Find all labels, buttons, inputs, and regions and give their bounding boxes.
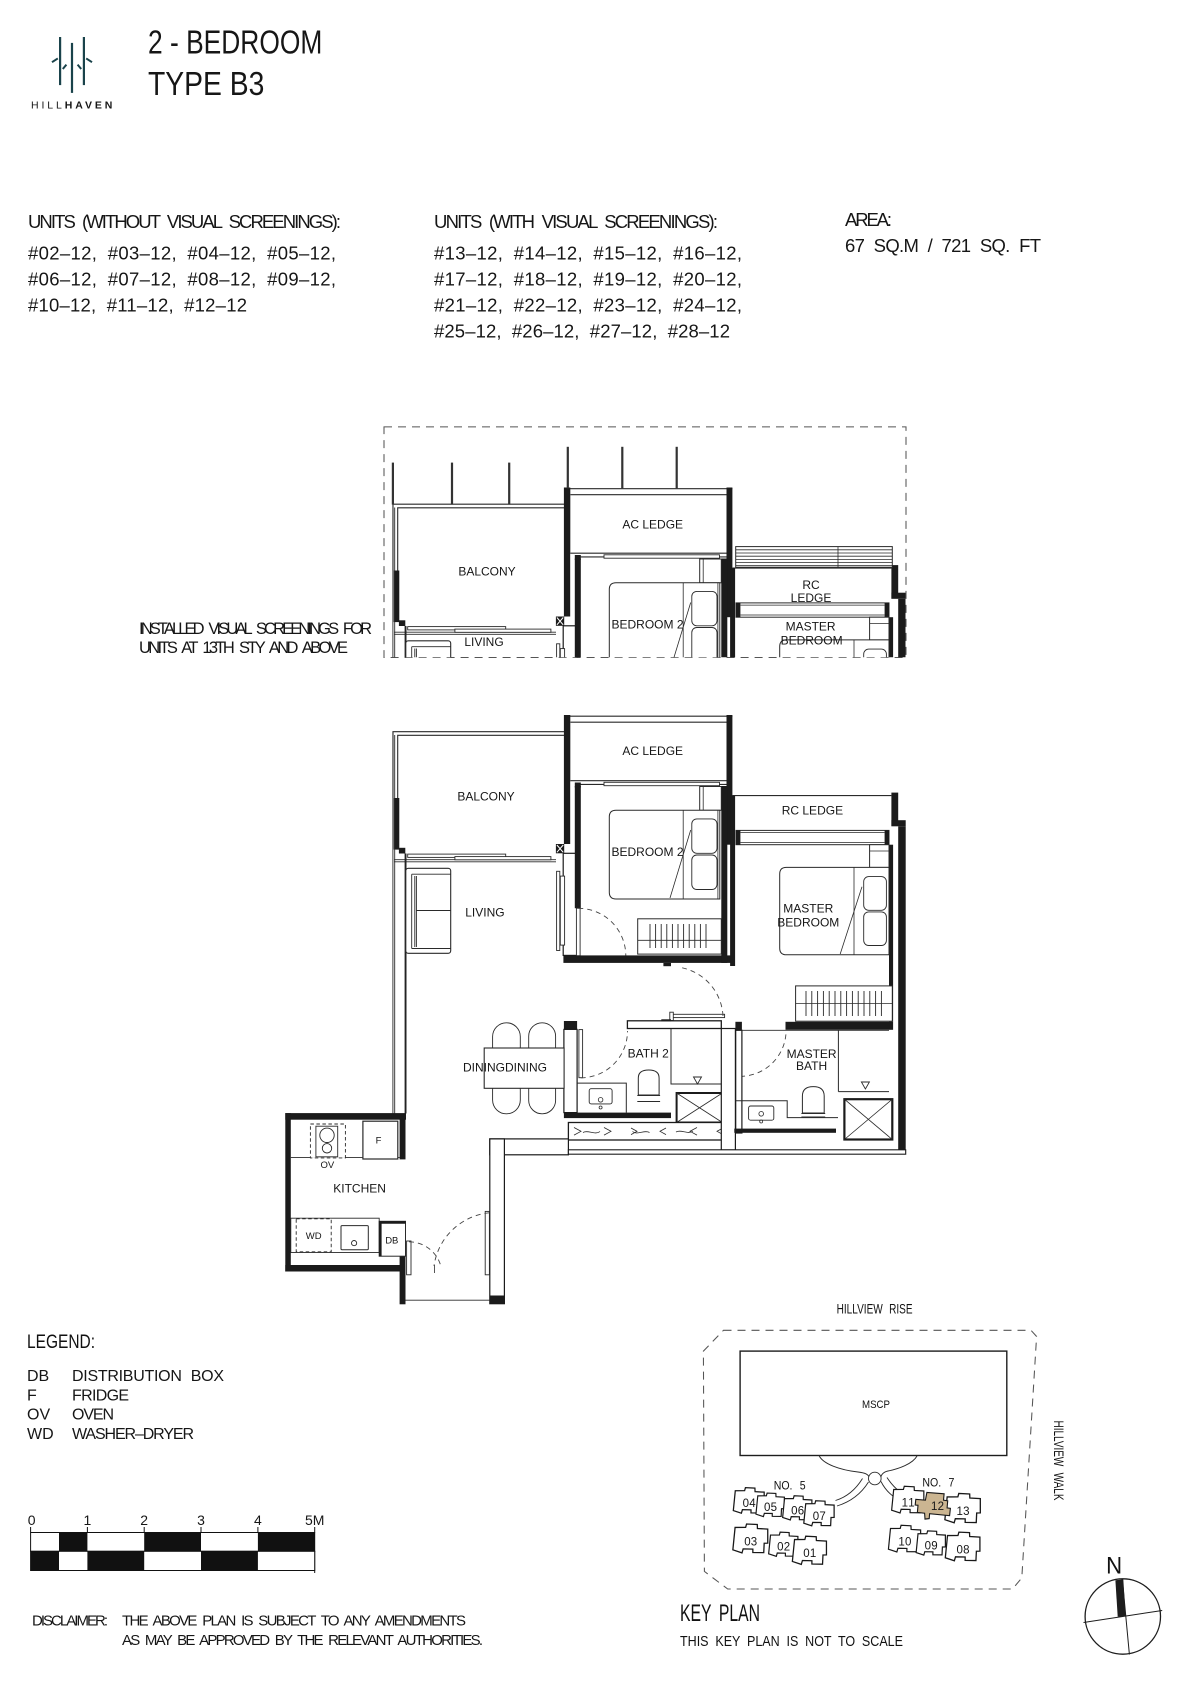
svg-text:RC LEDGE: RC LEDGE — [782, 803, 843, 817]
svg-text:LIVING: LIVING — [464, 635, 503, 649]
svg-text:OVEN: OVEN — [72, 1407, 114, 1424]
svg-text:06: 06 — [791, 1505, 804, 1517]
svg-text:THIS KEY PLAN IS NOT TO SCALE: THIS KEY PLAN IS NOT TO SCALE — [680, 1633, 903, 1650]
svg-text:07: 07 — [813, 1511, 826, 1523]
svg-text:3: 3 — [197, 1512, 205, 1528]
svg-text:UNITS AT 13TH STY AND ABOVE: UNITS AT 13TH STY AND ABOVE — [139, 639, 348, 657]
svg-text:01: 01 — [803, 1548, 816, 1560]
svg-text:OV: OV — [27, 1407, 50, 1424]
svg-text:DB: DB — [27, 1368, 49, 1385]
svg-text:BATH 2: BATH 2 — [628, 1047, 669, 1061]
svg-text:#13–12, #14–12, #15–12, #16–12: #13–12, #14–12, #15–12, #16–12, — [434, 243, 742, 264]
svg-text:NO. 7: NO. 7 — [922, 1476, 954, 1490]
svg-text:MASTER: MASTER — [783, 901, 833, 915]
svg-text:RC: RC — [802, 578, 820, 592]
svg-text:LEGEND:: LEGEND: — [27, 1331, 95, 1353]
svg-text:BEDROOM: BEDROOM — [777, 915, 839, 929]
svg-text:#21–12, #22–12, #23–12, #24–12: #21–12, #22–12, #23–12, #24–12, — [434, 295, 742, 316]
svg-text:05: 05 — [764, 1502, 777, 1514]
svg-text:#25–12, #26–12, #27–12, #28–12: #25–12, #26–12, #27–12, #28–12 — [434, 321, 730, 342]
svg-text:LEDGE: LEDGE — [791, 591, 832, 605]
svg-text:2: 2 — [140, 1512, 148, 1528]
svg-text:KITCHEN: KITCHEN — [333, 1182, 386, 1196]
svg-text:02: 02 — [777, 1542, 790, 1554]
svg-text:FRIDGE: FRIDGE — [72, 1388, 129, 1405]
svg-text:WD: WD — [306, 1231, 322, 1242]
svg-text:HILLHAVEN: HILLHAVEN — [31, 100, 115, 112]
svg-text:HILLVIEW RISE: HILLVIEW RISE — [837, 1301, 913, 1317]
svg-text:04: 04 — [743, 1498, 757, 1510]
svg-text:#10–12, #11–12, #12–12: #10–12, #11–12, #12–12 — [28, 295, 247, 316]
svg-text:#06–12, #07–12, #08–12, #09–12: #06–12, #07–12, #08–12, #09–12, — [28, 269, 336, 290]
svg-text:0: 0 — [28, 1512, 36, 1528]
svg-text:03: 03 — [744, 1536, 757, 1548]
svg-text:AS MAY BE APPROVED BY THE RELE: AS MAY BE APPROVED BY THE RELEVANT AUTHO… — [122, 1632, 483, 1649]
svg-text:AREA:: AREA: — [845, 209, 892, 230]
svg-text:DISTRIBUTION BOX: DISTRIBUTION BOX — [72, 1368, 224, 1385]
svg-text:BALCONY: BALCONY — [458, 565, 515, 579]
svg-text:BATH: BATH — [796, 1059, 827, 1073]
svg-text:F: F — [376, 1136, 382, 1147]
svg-text:MASTER: MASTER — [786, 620, 836, 634]
svg-text:KEY PLAN: KEY PLAN — [680, 1600, 760, 1627]
svg-text:12: 12 — [931, 1501, 944, 1513]
svg-text:DB: DB — [385, 1236, 398, 1247]
svg-text:WASHER–DRYER: WASHER–DRYER — [72, 1426, 194, 1443]
svg-text:BEDROOM 2: BEDROOM 2 — [611, 618, 683, 632]
svg-text:INSTALLED VISUAL SCREENINGS FO: INSTALLED VISUAL SCREENINGS FOR — [139, 620, 372, 638]
svg-text:TYPE B3: TYPE B3 — [148, 66, 264, 103]
svg-text:F: F — [27, 1388, 37, 1405]
svg-text:11: 11 — [902, 1497, 915, 1509]
svg-text:BEDROOM: BEDROOM — [781, 634, 843, 648]
svg-text:NO. 5: NO. 5 — [774, 1479, 806, 1493]
svg-text:5M: 5M — [305, 1512, 324, 1528]
svg-text:#02–12, #03–12, #04–12, #05–12: #02–12, #03–12, #04–12, #05–12, — [28, 243, 336, 264]
svg-text:67 SQ.M / 721 SQ. FT: 67 SQ.M / 721 SQ. FT — [845, 235, 1041, 256]
svg-text:UNITS (WITHOUT VISUAL SCREENIN: UNITS (WITHOUT VISUAL SCREENINGS): — [28, 211, 341, 232]
svg-text:AC LEDGE: AC LEDGE — [622, 744, 683, 758]
svg-text:WD: WD — [27, 1426, 54, 1443]
svg-text:#17–12, #18–12, #19–12, #20–12: #17–12, #18–12, #19–12, #20–12, — [434, 269, 742, 290]
svg-text:MSCP: MSCP — [862, 1399, 890, 1411]
svg-text:13: 13 — [957, 1506, 970, 1518]
svg-text:OV: OV — [321, 1160, 335, 1171]
svg-text:2 - BEDROOM: 2 - BEDROOM — [148, 25, 322, 62]
svg-text:N: N — [1106, 1553, 1122, 1580]
svg-text:UNITS (WITH VISUAL SCREENINGS): UNITS (WITH VISUAL SCREENINGS): — [434, 211, 718, 232]
svg-text:1: 1 — [84, 1512, 92, 1528]
svg-text:THE ABOVE PLAN IS SUBJECT TO A: THE ABOVE PLAN IS SUBJECT TO ANY AMENDME… — [122, 1613, 466, 1630]
svg-text:HILLVIEW WALK: HILLVIEW WALK — [1051, 1421, 1067, 1501]
svg-text:BEDROOM 2: BEDROOM 2 — [611, 845, 683, 859]
svg-text:09: 09 — [925, 1540, 938, 1552]
svg-text:AC LEDGE: AC LEDGE — [622, 518, 683, 532]
svg-text:DININGDINING: DININGDINING — [463, 1061, 547, 1075]
svg-text:BALCONY: BALCONY — [457, 790, 514, 804]
svg-text:10: 10 — [898, 1536, 911, 1548]
svg-text:DISCLAIMER:: DISCLAIMER: — [32, 1613, 108, 1630]
svg-text:4: 4 — [254, 1512, 262, 1528]
svg-text:LIVING: LIVING — [465, 906, 504, 920]
svg-text:08: 08 — [957, 1544, 970, 1556]
